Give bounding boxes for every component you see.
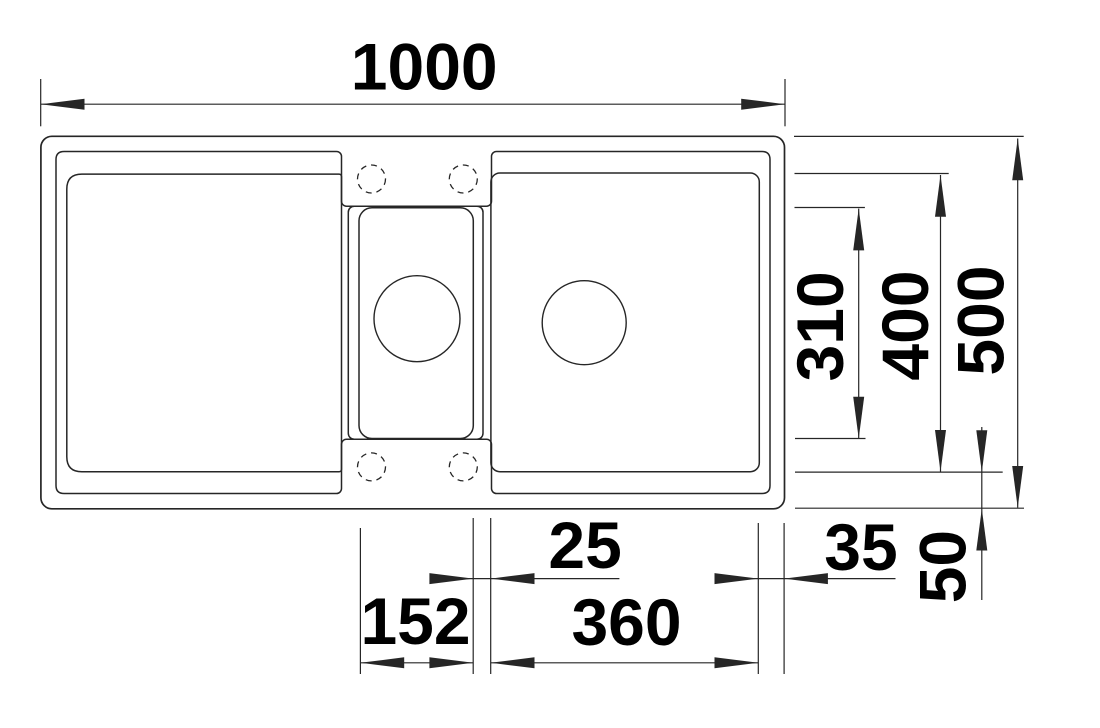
svg-text:152: 152 (360, 584, 470, 658)
svg-text:360: 360 (571, 585, 681, 659)
svg-text:25: 25 (548, 508, 621, 582)
svg-text:1000: 1000 (351, 30, 498, 104)
svg-text:400: 400 (868, 270, 942, 380)
svg-text:50: 50 (906, 530, 980, 603)
svg-text:35: 35 (824, 510, 897, 584)
svg-text:500: 500 (944, 265, 1018, 375)
svg-text:310: 310 (783, 271, 857, 381)
